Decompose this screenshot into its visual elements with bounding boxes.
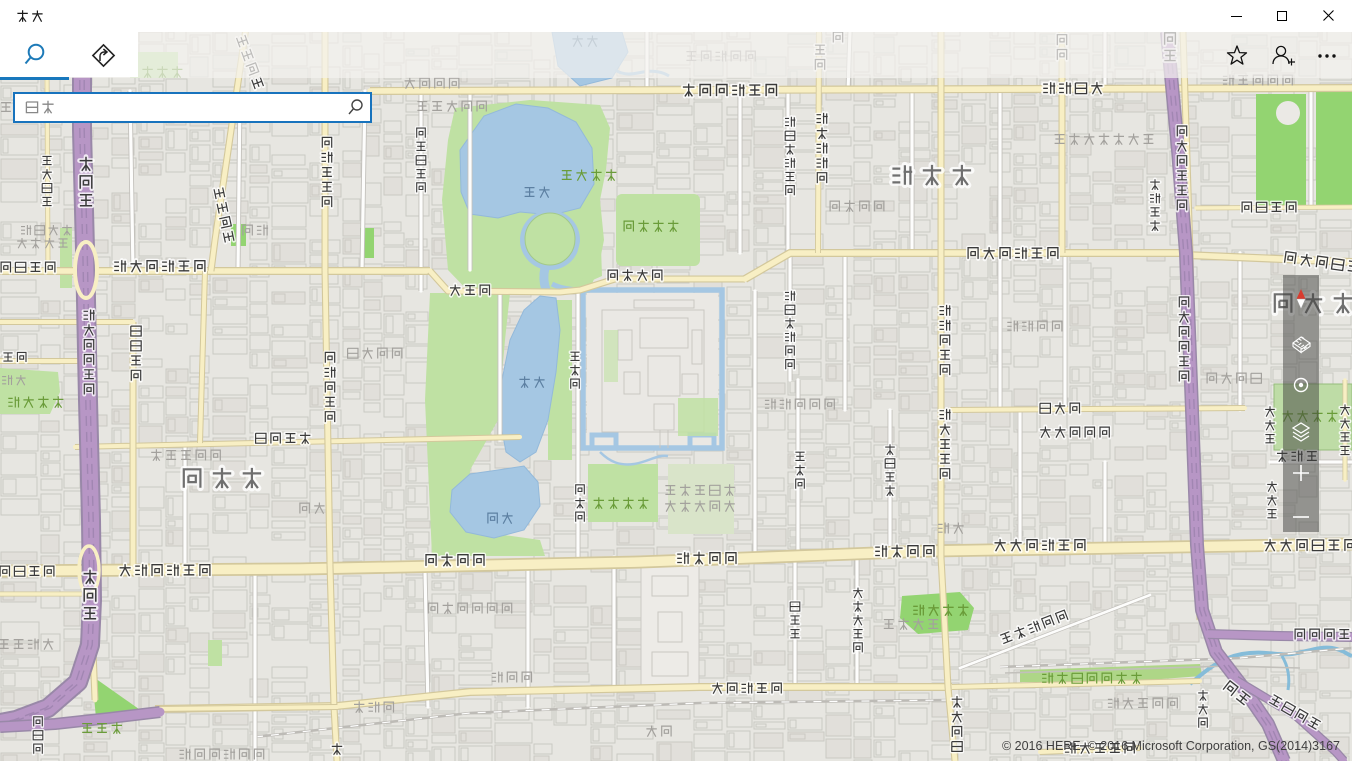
svg-text:© 2016 HERE, © 2016 Microsoft: © 2016 HERE, © 2016 Microsoft Corporatio… (1002, 739, 1340, 753)
